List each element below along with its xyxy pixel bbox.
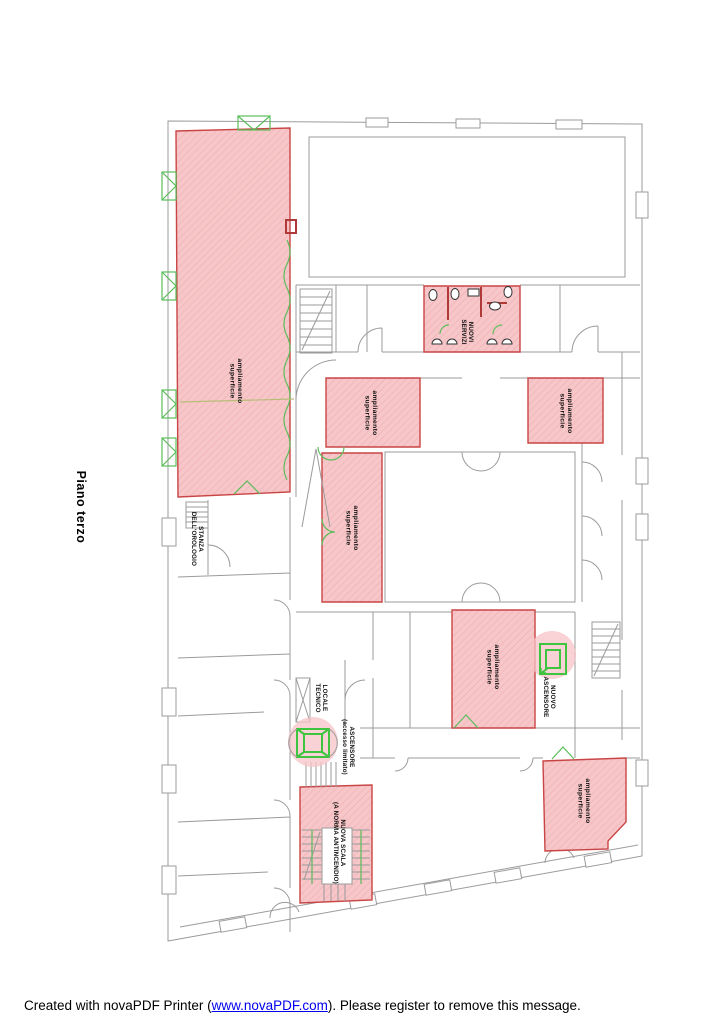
svg-text:ampliamento: ampliamento	[493, 644, 500, 689]
svg-text:TECNICO: TECNICO	[314, 683, 321, 712]
svg-text:LOCALE: LOCALE	[321, 685, 328, 712]
svg-text:superficie: superficie	[577, 783, 584, 818]
svg-text:ampliamento: ampliamento	[352, 505, 359, 550]
label-room-center-lower: ampliamento superficie	[486, 644, 501, 689]
floor-plan: ampliamento superficie ampliamento super…	[0, 0, 723, 1024]
watermark-suffix: ). Please register to remove this messag…	[328, 998, 581, 1013]
svg-text:superficie: superficie	[559, 393, 566, 428]
svg-text:superficie: superficie	[486, 649, 493, 684]
novapdf-link[interactable]: www.novaPDF.com	[212, 998, 328, 1013]
label-room-south-east: ampliamento superficie	[577, 778, 592, 823]
label-limited-elevator: ASCENSORE (accesso limitato)	[341, 719, 355, 775]
room-left-wing-large	[176, 128, 290, 497]
label-room-center-tall: ampliamento superficie	[345, 505, 360, 550]
pdf-page: Piano terzo	[0, 0, 723, 1024]
svg-text:ASCENSORE: ASCENSORE	[542, 677, 549, 718]
svg-text:(A NORMA ANTINCENDIO): (A NORMA ANTINCENDIO)	[332, 802, 339, 884]
label-room-center-upper: ampliamento superficie	[364, 390, 379, 435]
watermark-prefix: Created with novaPDF Printer (	[24, 998, 212, 1013]
svg-text:superficie: superficie	[364, 395, 371, 430]
svg-text:NUOVO: NUOVO	[549, 685, 556, 709]
svg-text:NUOVA SCALA: NUOVA SCALA	[339, 820, 346, 867]
svg-text:ASCENSORE: ASCENSORE	[348, 727, 355, 768]
svg-text:(accesso limitato): (accesso limitato)	[341, 719, 348, 775]
label-new-services: NUOVI SERVIZI	[460, 319, 474, 344]
svg-text:DELL'OROLOGIO: DELL'OROLOGIO	[190, 512, 197, 566]
svg-text:superficie: superficie	[229, 363, 236, 398]
svg-text:ampliamento: ampliamento	[236, 358, 243, 403]
limited-elevator-symbol	[288, 717, 338, 767]
label-technical-room: LOCALE TECNICO	[314, 683, 328, 712]
svg-text:STANZA: STANZA	[197, 526, 204, 552]
svg-text:ampliamento: ampliamento	[584, 778, 591, 823]
svg-text:ampliamento: ampliamento	[566, 388, 573, 433]
svg-text:superficie: superficie	[345, 510, 352, 545]
new-elevator-symbol	[528, 631, 576, 679]
label-room-east-upper: ampliamento superficie	[559, 388, 574, 433]
svg-text:NUOVI: NUOVI	[467, 322, 474, 343]
svg-text:SERVIZI: SERVIZI	[460, 319, 467, 344]
svg-text:ampliamento: ampliamento	[371, 390, 378, 435]
label-room-left-wing-large: ampliamento superficie	[229, 358, 244, 403]
novapdf-watermark: Created with novaPDF Printer (www.novaPD…	[24, 998, 581, 1013]
